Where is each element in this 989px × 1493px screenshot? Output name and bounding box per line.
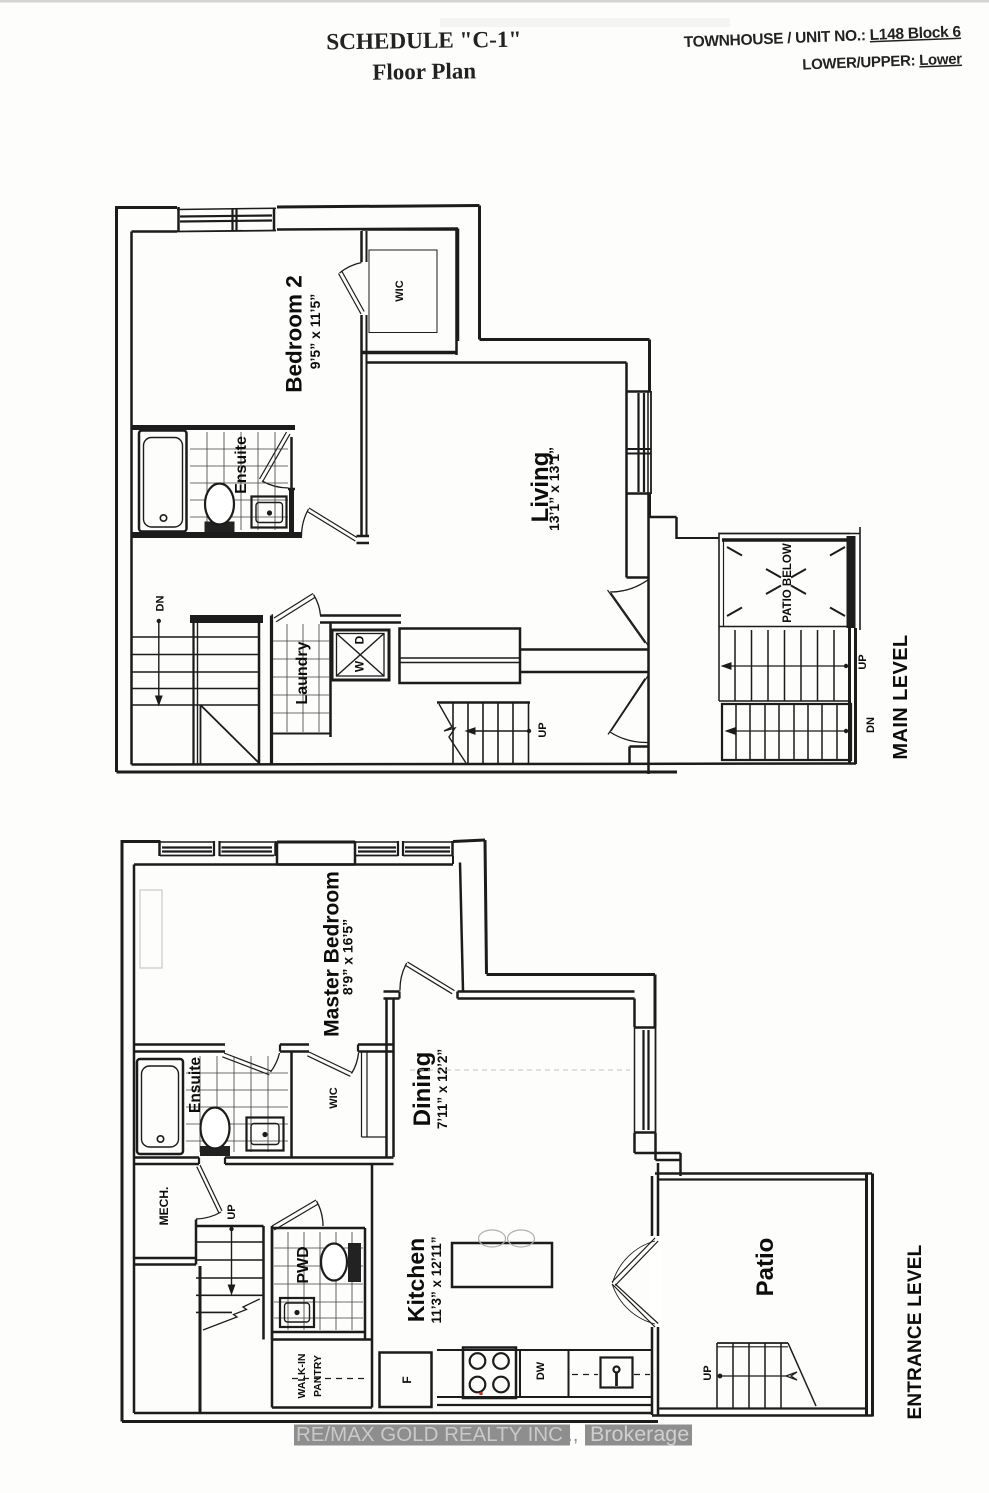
svg-text:Kitchen: Kitchen <box>403 1238 429 1322</box>
svg-text:11’3” x 12’11”: 11’3” x 12’11” <box>429 1236 444 1323</box>
svg-text:Bedroom 2: Bedroom 2 <box>282 275 307 393</box>
svg-text:UP: UP <box>537 722 549 737</box>
svg-text:Brokerage: Brokerage <box>590 1422 689 1446</box>
svg-text:WALK-IN: WALK-IN <box>296 1354 308 1399</box>
svg-text:UP: UP <box>226 1204 238 1219</box>
svg-text:DN: DN <box>155 596 167 612</box>
svg-text:.,: ., <box>567 1423 578 1446</box>
svg-text:WIC: WIC <box>328 1087 340 1108</box>
svg-text:PANTRY: PANTRY <box>312 1355 324 1397</box>
svg-text:Floor Plan: Floor Plan <box>372 58 476 84</box>
svg-text:13’1” x 13’1”: 13’1” x 13’1” <box>546 447 562 531</box>
svg-text:RE/MAX GOLD REALTY INC: RE/MAX GOLD REALTY INC <box>296 1423 563 1446</box>
svg-text:MAIN LEVEL: MAIN LEVEL <box>890 634 912 759</box>
svg-text:Patio: Patio <box>752 1238 779 1297</box>
svg-text:Ensuite: Ensuite <box>233 436 250 494</box>
svg-text:9’5” x 11’5”: 9’5” x 11’5” <box>307 294 323 370</box>
svg-text:PWD: PWD <box>295 1246 312 1283</box>
svg-text:8’9” x 16’5”: 8’9” x 16’5” <box>340 919 356 995</box>
svg-text:UP: UP <box>702 1365 714 1380</box>
svg-text:ENTRANCE LEVEL: ENTRANCE LEVEL <box>905 1244 926 1419</box>
svg-text:MECH.: MECH. <box>157 1187 171 1226</box>
svg-text:UP: UP <box>857 654 869 669</box>
svg-text:Dining: Dining <box>409 1052 436 1127</box>
svg-text:F: F <box>400 1376 414 1383</box>
svg-text:W: W <box>353 660 367 672</box>
svg-text:7’11” x 12’2”: 7’11” x 12’2” <box>435 1049 450 1129</box>
svg-text:PATIO BELOW: PATIO BELOW <box>782 543 794 623</box>
svg-text:DN: DN <box>865 717 877 733</box>
svg-text:SCHEDULE "C-1": SCHEDULE "C-1" <box>326 27 522 56</box>
svg-text:D: D <box>353 635 367 644</box>
svg-text:Ensuite: Ensuite <box>187 1057 204 1113</box>
svg-text:WIC: WIC <box>394 280 406 301</box>
svg-text:DW: DW <box>535 1361 547 1380</box>
svg-text:Laundry: Laundry <box>294 641 311 704</box>
